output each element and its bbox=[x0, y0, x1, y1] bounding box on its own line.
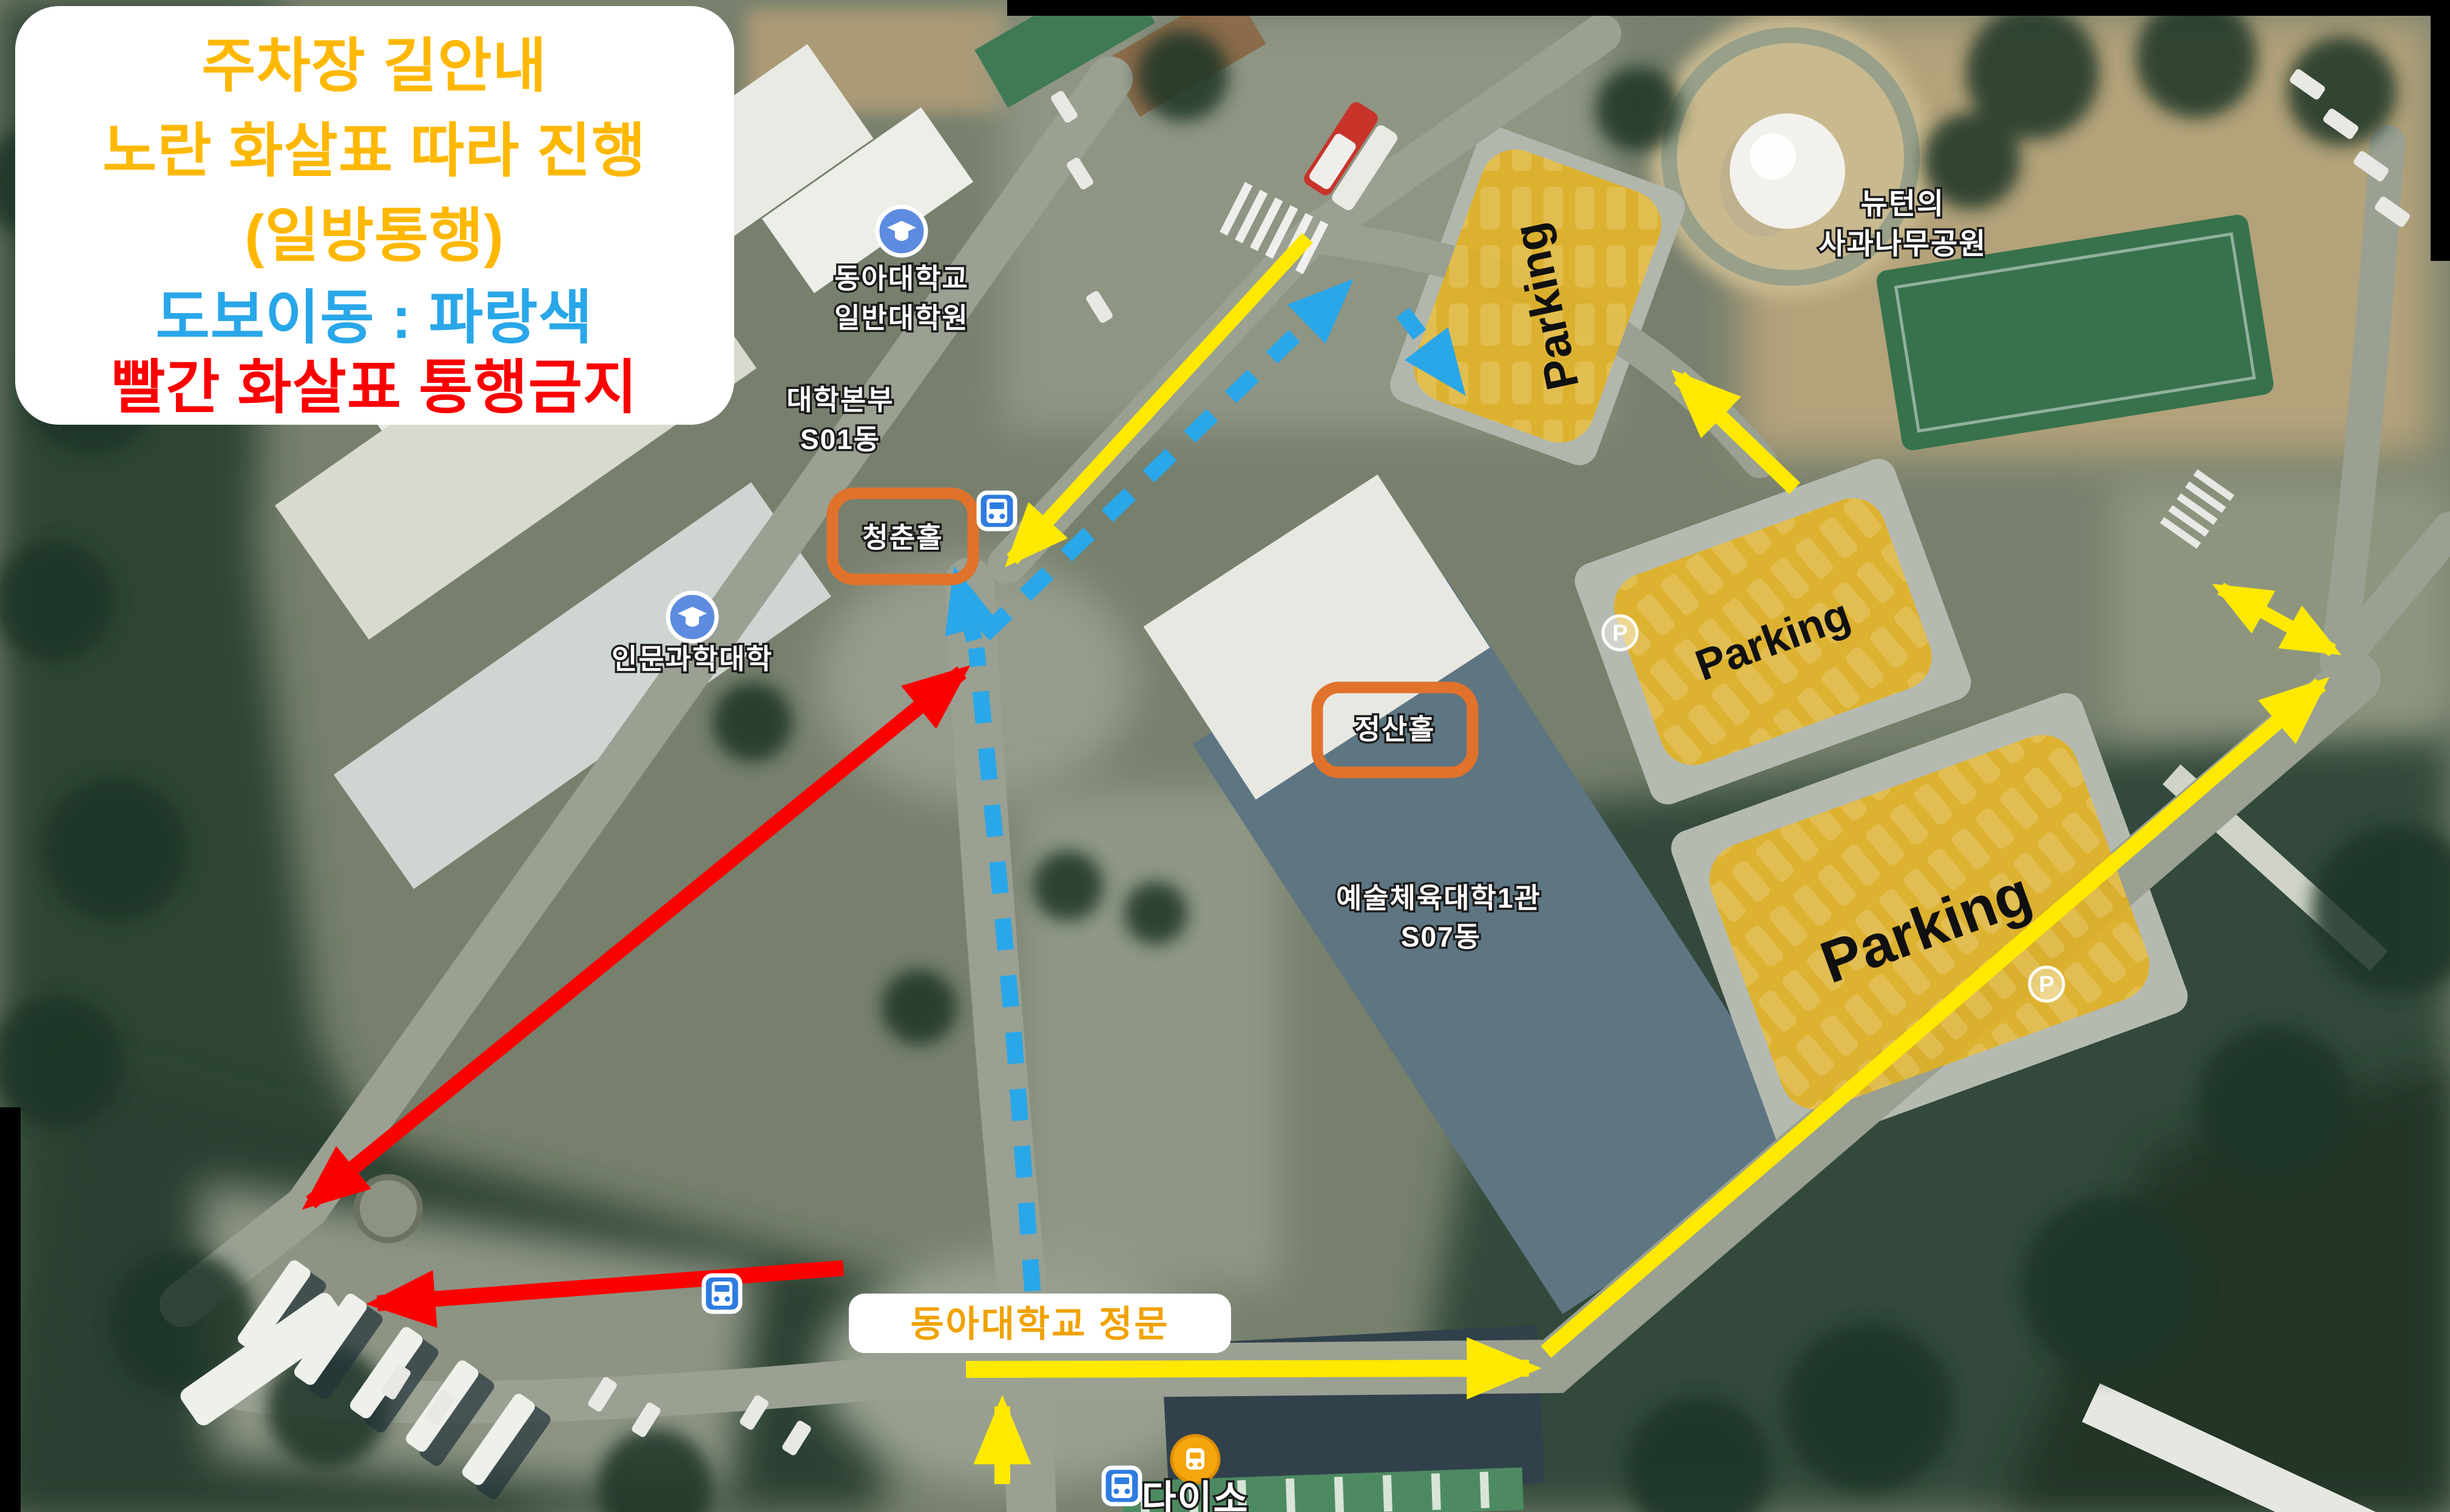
main-gate-label-text: 동아대학교 정문 bbox=[910, 1304, 1169, 1345]
label-arts-pe-line2: S07동 bbox=[1401, 921, 1481, 953]
label-grad-school-line1: 동아대학교 bbox=[834, 263, 969, 294]
legend-line-3: (일방통행) bbox=[245, 203, 504, 269]
label-daiso: 다이소 bbox=[1141, 1479, 1249, 1512]
main-gate-label: 동아대학교 정문 bbox=[849, 1294, 1231, 1353]
legend-line-4: 도보이동 : 파랑색 bbox=[156, 285, 593, 351]
label-newton-line2: 사과나무공원 bbox=[1819, 228, 1987, 260]
road-circle-planter bbox=[357, 1177, 420, 1240]
yellow-arrow-gate-right bbox=[966, 1368, 1529, 1369]
legend-line-2: 노란 화살표 따라 진행 bbox=[103, 118, 646, 184]
bus-stop-icon[interactable] bbox=[1104, 1468, 1140, 1504]
legend-line-1: 주차장 길안내 bbox=[201, 33, 547, 99]
legend-line-5: 빨간 화살표 통행금지 bbox=[111, 354, 638, 420]
bus-stop-icon[interactable] bbox=[979, 493, 1015, 529]
campus-parking-guide-map: P bbox=[0, 0, 2450, 1512]
label-admin-line1: 대학본부 bbox=[786, 384, 894, 416]
label-jeongsan-hall: 정산홀 bbox=[1355, 714, 1436, 745]
daiso-store-marker-icon[interactable] bbox=[1172, 1436, 1219, 1483]
legend-box: 주차장 길안내 노란 화살표 따라 진행 (일방통행) 도보이동 : 파랑색 빨… bbox=[15, 6, 734, 425]
label-chungchon-hall: 청춘홀 bbox=[863, 522, 943, 553]
label-newton-line1: 뉴턴의 bbox=[1861, 188, 1945, 220]
label-grad-school-line2: 일반대학원 bbox=[834, 302, 969, 334]
university-marker-humanities[interactable] bbox=[668, 593, 717, 641]
label-arts-pe-line1: 예술체육대학1관 bbox=[1336, 882, 1541, 914]
label-humanities: 인문과학대학 bbox=[612, 643, 773, 675]
bus-stop-icon[interactable] bbox=[704, 1275, 740, 1312]
label-admin-line2: S01동 bbox=[800, 424, 880, 455]
parking-p-marker[interactable] bbox=[1603, 616, 1637, 650]
parking-p-marker[interactable] bbox=[2030, 967, 2064, 1001]
university-marker-grad-school[interactable] bbox=[877, 207, 926, 255]
